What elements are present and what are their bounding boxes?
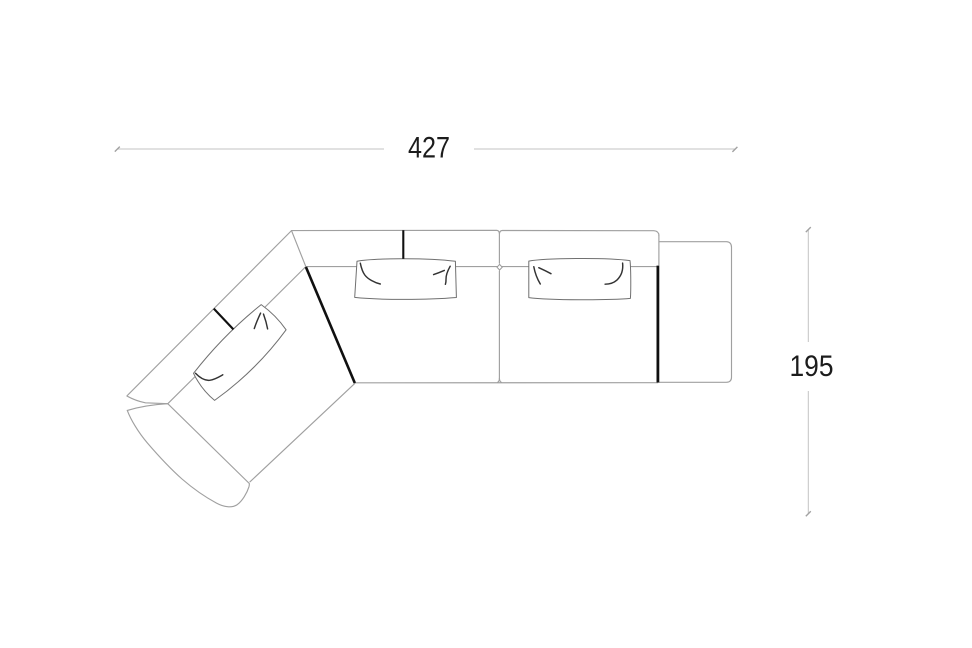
svg-text:195: 195 [790, 350, 834, 383]
svg-text:427: 427 [408, 131, 450, 164]
